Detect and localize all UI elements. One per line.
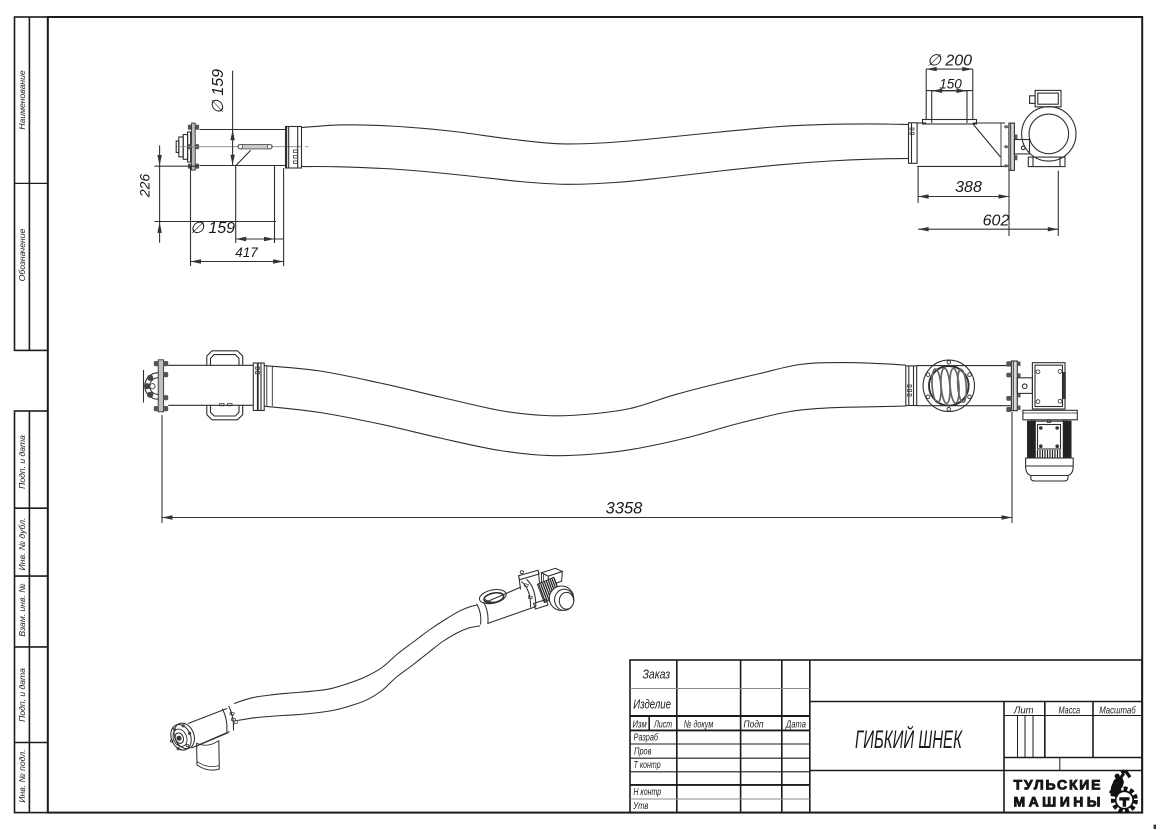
svg-text:150: 150 bbox=[939, 77, 962, 92]
svg-text:388: 388 bbox=[955, 179, 982, 196]
svg-text:Н контр: Н контр bbox=[633, 786, 661, 798]
svg-text:Изм: Изм bbox=[632, 718, 647, 729]
svg-text:Т контр: Т контр bbox=[634, 759, 661, 771]
svg-text:Инв. № дубл.: Инв. № дубл. bbox=[17, 518, 27, 571]
svg-text:Обозначение: Обозначение bbox=[17, 228, 27, 281]
svg-text:ТУЛЬСКИЕ: ТУЛЬСКИЕ bbox=[1014, 777, 1101, 793]
svg-text:226: 226 bbox=[137, 174, 153, 199]
svg-text:Взам. инв. №: Взам. инв. № bbox=[17, 583, 27, 636]
svg-text:ГИБКИЙ ШНЕК: ГИБКИЙ ШНЕК bbox=[855, 726, 963, 754]
svg-text:Подп. и дата: Подп. и дата bbox=[17, 435, 27, 489]
svg-text:Масса: Масса bbox=[1059, 704, 1081, 715]
svg-text:Изделие: Изделие bbox=[633, 698, 671, 712]
svg-text:Разраб: Разраб bbox=[634, 731, 659, 743]
svg-text:Инв. № подл.: Инв. № подл. bbox=[17, 749, 27, 802]
svg-text:3358: 3358 bbox=[606, 500, 644, 518]
svg-text:Лит: Лит bbox=[1013, 705, 1034, 716]
svg-text:Заказ: Заказ bbox=[642, 669, 670, 682]
svg-text:Пров: Пров bbox=[634, 745, 652, 757]
svg-text:∅ 159: ∅ 159 bbox=[210, 69, 227, 114]
svg-text:№ докум: № докум bbox=[684, 718, 713, 730]
svg-text:Лист: Лист bbox=[653, 718, 672, 730]
svg-text:∅ 159: ∅ 159 bbox=[190, 220, 235, 237]
svg-text:∅ 200: ∅ 200 bbox=[927, 53, 972, 70]
svg-text:Подп: Подп bbox=[743, 719, 764, 731]
svg-text:602: 602 bbox=[983, 213, 1010, 230]
svg-text:Утв: Утв bbox=[632, 800, 648, 811]
svg-text:Дата: Дата bbox=[785, 718, 806, 729]
svg-text:Наименование: Наименование bbox=[17, 70, 27, 130]
svg-text:Масштаб: Масштаб bbox=[1099, 705, 1136, 716]
svg-text:417: 417 bbox=[235, 245, 258, 260]
svg-text:Подп. и дата: Подп. и дата bbox=[17, 668, 27, 722]
